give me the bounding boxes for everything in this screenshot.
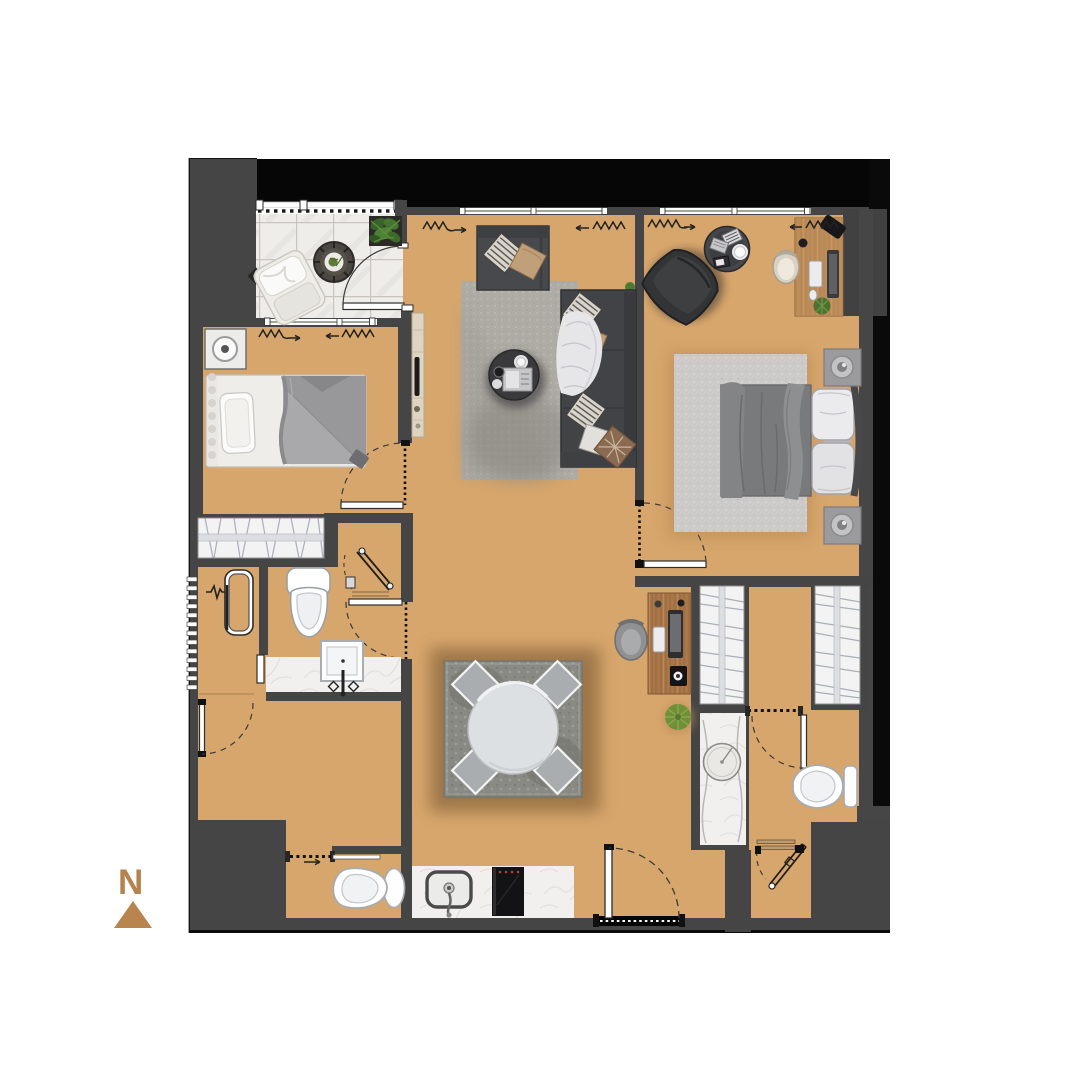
svg-text:N: N xyxy=(118,863,143,902)
